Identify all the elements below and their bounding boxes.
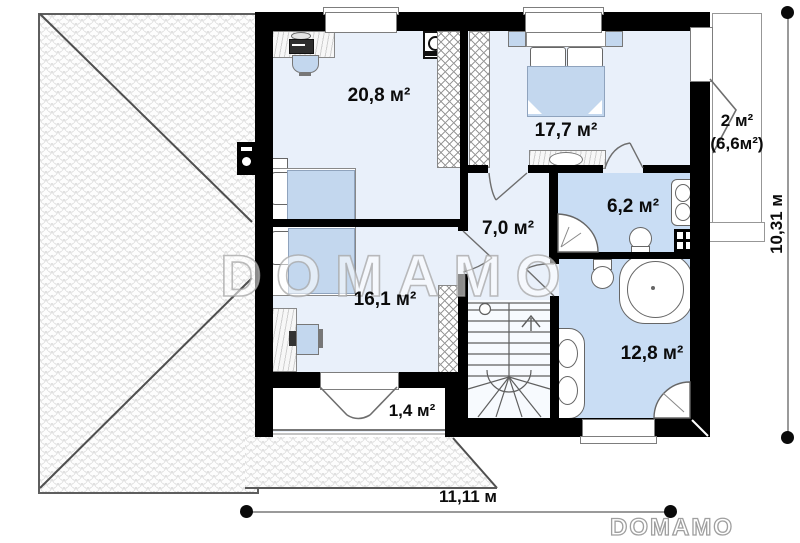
door	[489, 173, 527, 200]
stair-direction-arrow	[522, 316, 540, 331]
room-area-label: 6,2 м²	[585, 196, 681, 218]
room-area-label: 1,4 м²	[374, 401, 450, 421]
shower-icon	[654, 382, 690, 418]
room-area-label: 20,8 м²	[329, 85, 429, 107]
room-area-label: 16,1 м²	[337, 289, 433, 311]
room-area-label: 7,0 м²	[460, 218, 556, 240]
room-area-label: 17,7 м²	[516, 120, 616, 142]
domamo-logo: DOMAMO	[610, 514, 734, 542]
roof-hip-line	[40, 14, 252, 222]
door	[605, 143, 643, 168]
floor-plan: 11,11 м 10,31 м	[0, 0, 800, 543]
roof-hip-line	[453, 438, 497, 488]
corner-notch-line	[692, 420, 708, 436]
room-area-label: 12,8 м²	[604, 343, 700, 365]
room-area-label: 2 м²	[699, 111, 775, 131]
staircase-icon	[468, 303, 550, 417]
room-area-label: (6,6м²)	[695, 134, 779, 154]
